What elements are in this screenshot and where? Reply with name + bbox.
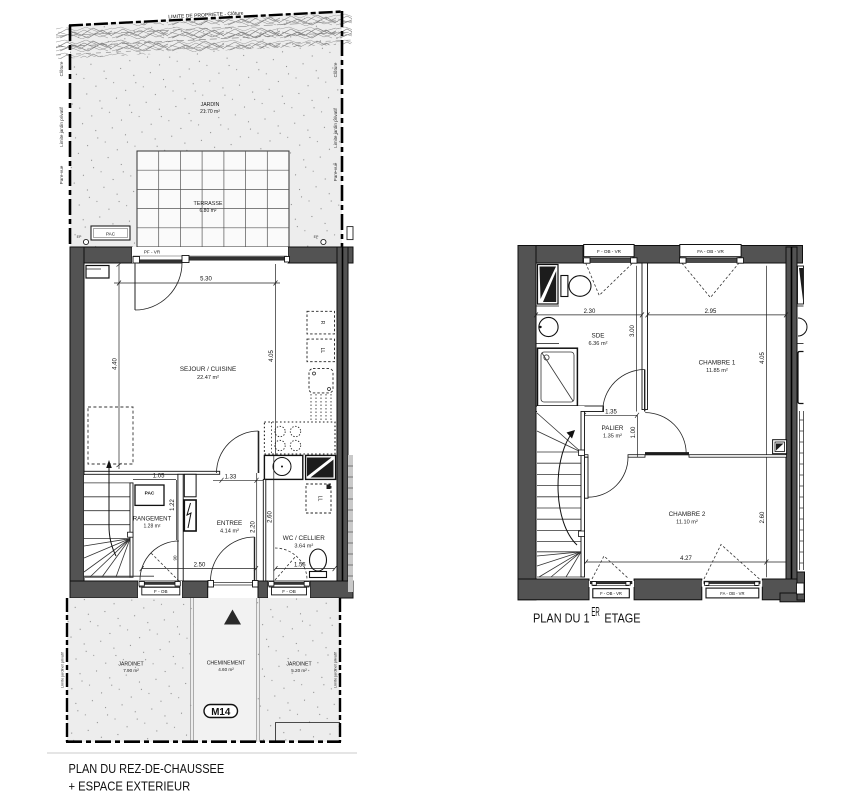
svg-text:4.27: 4.27 (680, 556, 692, 562)
svg-text:PAC: PAC (106, 232, 116, 237)
svg-text:4.05: 4.05 (269, 350, 275, 362)
svg-text:Limite jardinet privatif: Limite jardinet privatif (334, 651, 338, 688)
svg-text:1.05: 1.05 (153, 474, 165, 480)
svg-text:F - OB: F - OB (154, 589, 168, 594)
svg-text:LL: LL (319, 348, 325, 354)
svg-text:5.20 m²: 5.20 m² (291, 668, 307, 673)
svg-text:FA - OB - VR: FA - OB - VR (697, 249, 724, 254)
svg-text:FA - OB - VR: FA - OB - VR (720, 591, 744, 596)
svg-text:3.64 m²: 3.64 m² (294, 544, 313, 550)
svg-text:PLAN DU 1: PLAN DU 1 (533, 610, 590, 625)
svg-text:2.30: 2.30 (584, 309, 596, 315)
svg-text:1.33: 1.33 (225, 474, 237, 480)
svg-text:Clôture: Clôture (59, 61, 64, 76)
svg-text:TERRASSE: TERRASSE (193, 201, 222, 207)
svg-text:1.00: 1.00 (631, 426, 637, 438)
svg-text:ETAGE: ETAGE (604, 610, 640, 625)
svg-text:3.00: 3.00 (630, 325, 636, 337)
svg-text:1.22: 1.22 (170, 499, 176, 511)
svg-text:4.40: 4.40 (113, 358, 119, 370)
svg-text:CHAMBRE 1: CHAMBRE 1 (699, 360, 736, 367)
svg-text:Pare-vue: Pare-vue (59, 165, 64, 184)
svg-text:PAC: PAC (145, 491, 155, 497)
svg-text:F - OB: F - OB (282, 589, 296, 594)
svg-text:22.47 m²: 22.47 m² (197, 375, 219, 381)
svg-text:2.95: 2.95 (705, 309, 717, 315)
svg-text:ENTREE: ENTREE (217, 520, 243, 527)
svg-text:F - OB - VR: F - OB - VR (600, 591, 622, 596)
svg-text:PLAN DU REZ-DE-CHAUSSEE: PLAN DU REZ-DE-CHAUSSEE (69, 761, 225, 776)
svg-text:Pare-vue: Pare-vue (333, 162, 338, 181)
svg-text:7.90 m²: 7.90 m² (123, 668, 139, 673)
svg-text:EP: EP (77, 235, 82, 239)
svg-text:4.05: 4.05 (760, 352, 766, 364)
svg-text:2.50: 2.50 (194, 563, 206, 569)
svg-text:1.35 m²: 1.35 m² (603, 434, 622, 440)
svg-text:+ ESPACE EXTERIEUR: + ESPACE EXTERIEUR (69, 779, 191, 794)
svg-text:21.70 m²: 21.70 m² (200, 109, 220, 115)
svg-text:6.80 m²: 6.80 m² (200, 208, 217, 214)
svg-text:JARDINET: JARDINET (286, 662, 312, 668)
svg-text:ER: ER (591, 604, 599, 619)
svg-text:SEJOUR / CUISINE: SEJOUR / CUISINE (180, 366, 236, 373)
svg-text:EP: EP (314, 235, 319, 239)
svg-text:R: R (319, 321, 325, 325)
svg-text:JARDIN: JARDIN (201, 102, 220, 108)
svg-text:Clôture: Clôture (333, 62, 338, 77)
svg-text:90: 90 (173, 555, 178, 561)
svg-text:JARDINET: JARDINET (118, 662, 144, 668)
svg-text:PF - VR: PF - VR (144, 250, 161, 255)
svg-text:RANGEMENT: RANGEMENT (133, 517, 172, 523)
svg-text:2.60: 2.60 (760, 511, 766, 523)
svg-text:Limite jardin privatif: Limite jardin privatif (333, 107, 338, 147)
svg-text:2.60: 2.60 (268, 511, 274, 523)
svg-text:2.20: 2.20 (250, 521, 256, 533)
svg-text:6.36 m²: 6.36 m² (589, 341, 608, 347)
svg-text:F - OB - VR: F - OB - VR (597, 249, 622, 254)
svg-text:CHEMINEMENT: CHEMINEMENT (207, 661, 246, 667)
svg-text:SDE: SDE (592, 333, 605, 340)
svg-text:WC / CELLIER: WC / CELLIER (283, 535, 325, 542)
svg-text:PALIER: PALIER (602, 425, 624, 432)
svg-text:11.85 m²: 11.85 m² (706, 368, 728, 374)
svg-text:Limite jardin privatif: Limite jardin privatif (59, 106, 64, 146)
svg-text:1.35: 1.35 (605, 409, 617, 415)
svg-text:4.14 m²: 4.14 m² (220, 529, 239, 535)
svg-text:LL: LL (317, 496, 323, 502)
svg-text:5.30: 5.30 (200, 277, 212, 283)
svg-text:CHAMBRE 2: CHAMBRE 2 (669, 511, 706, 518)
svg-text:4.60 m²: 4.60 m² (218, 667, 234, 672)
svg-text:M14: M14 (211, 707, 231, 718)
svg-text:1.28 m²: 1.28 m² (144, 524, 161, 530)
svg-text:Limite jardinet privatif: Limite jardinet privatif (61, 651, 65, 688)
svg-text:11.10 m²: 11.10 m² (676, 520, 698, 526)
